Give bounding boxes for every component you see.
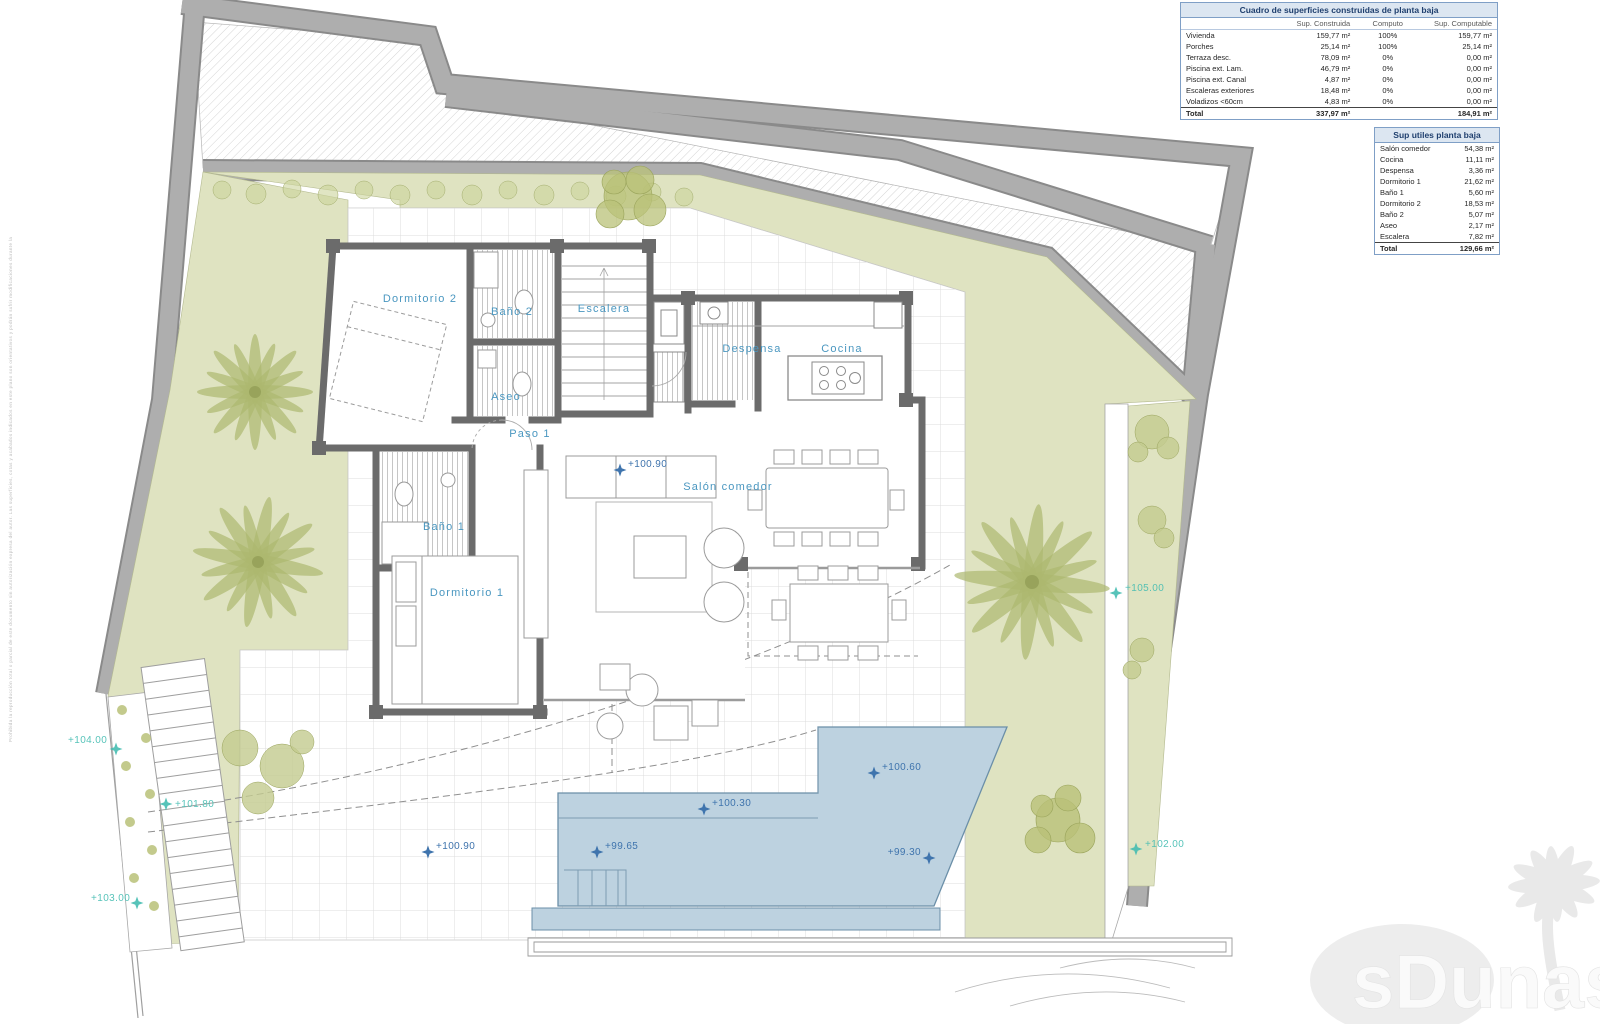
room-label-dormitorio1: Dormitorio 1 [430, 587, 504, 599]
table-row: Baño 15,60 m² [1375, 187, 1499, 198]
palm-tree-left-1 [197, 334, 313, 450]
table-title: Cuadro de superficies construidas de pla… [1181, 3, 1497, 18]
room-label-salon: Salón comedor [683, 481, 773, 493]
room-label-escalera: Escalera [578, 303, 630, 315]
room-label-aseo: Aseo [491, 391, 521, 403]
watermark-text: sDunas [1352, 940, 1600, 1024]
room-label-cocina: Cocina [821, 343, 862, 355]
vertical-disclaimer-text: Prohibida la reproducción total o parcia… [8, 237, 13, 742]
room-label-dormitorio2: Dormitorio 2 [383, 293, 457, 305]
table-row: Vivienda159,77 m² 100%159,77 m² [1181, 30, 1497, 42]
level-label: +99.65 [605, 841, 638, 852]
level-label: +100.90 [628, 459, 667, 470]
ground-contour-lines [955, 959, 1195, 1006]
table-row: Despensa3,36 m² [1375, 165, 1499, 176]
floor-plan-svg: +100.90 +100.90 +99.65 +100.30 +100.60 +… [0, 0, 1600, 1024]
table-header-row: Sup. Construida Computo Sup. Computable [1181, 18, 1497, 30]
table-row: Dormitorio 121,62 m² [1375, 176, 1499, 187]
level-label: +100.60 [882, 762, 921, 773]
level-label: +102.00 [1145, 839, 1184, 850]
table-row: Cocina11,11 m² [1375, 154, 1499, 165]
pool-overflow-trough [528, 938, 1232, 956]
table-row: Piscina ext. Lam.46,79 m² 0%0,00 m² [1181, 63, 1497, 74]
room-label-despensa: Despensa [722, 343, 781, 355]
table-row: Aseo2,17 m² [1375, 220, 1499, 231]
level-label: +104.00 [68, 735, 107, 746]
level-label: +105.00 [1125, 583, 1164, 594]
table-title: Sup utiles planta baja [1375, 128, 1499, 143]
table-row: Terraza desc.78,09 m² 0%0,00 m² [1181, 52, 1497, 63]
table-total-row: Total337,97 m² 184,91 m² [1181, 108, 1497, 120]
table-total-row: Total129,66 m² [1375, 243, 1499, 255]
level-label: +99.30 [888, 847, 921, 858]
table-row: Salón comedor54,38 m² [1375, 143, 1499, 154]
table-row: Escalera7,82 m² [1375, 231, 1499, 243]
table-row: Escaleras exteriores18,48 m² 0%0,00 m² [1181, 85, 1497, 96]
table-superficies-utiles: Sup utiles planta baja Salón comedor54,3… [1374, 127, 1500, 255]
room-label-bano2: Baño 2 [491, 306, 533, 318]
level-label: +103.00 [91, 893, 130, 904]
table-row: Dormitorio 218,53 m² [1375, 198, 1499, 209]
table-row: Voladizos <60cm4,83 m² 0%0,00 m² [1181, 96, 1497, 108]
bed-dormitorio1 [392, 556, 518, 704]
level-label: +100.90 [436, 841, 475, 852]
watermark-logo: sDunas [1310, 842, 1600, 1024]
entry-vestibule [654, 302, 684, 402]
level-label: +100.30 [712, 798, 751, 809]
table-row: Baño 25,07 m² [1375, 209, 1499, 220]
room-label-bano1: Baño 1 [423, 521, 465, 533]
level-label: +101.80 [175, 799, 214, 810]
table-row: Piscina ext. Canal4,87 m² 0%0,00 m² [1181, 74, 1497, 85]
room-label-paso1: Paso 1 [509, 428, 550, 440]
table-row: Porches25,14 m² 100%25,14 m² [1181, 41, 1497, 52]
floor-plan-sheet: +100.90 +100.90 +99.65 +100.30 +100.60 +… [0, 0, 1600, 1024]
table-superficies-construidas: Cuadro de superficies construidas de pla… [1180, 2, 1498, 120]
